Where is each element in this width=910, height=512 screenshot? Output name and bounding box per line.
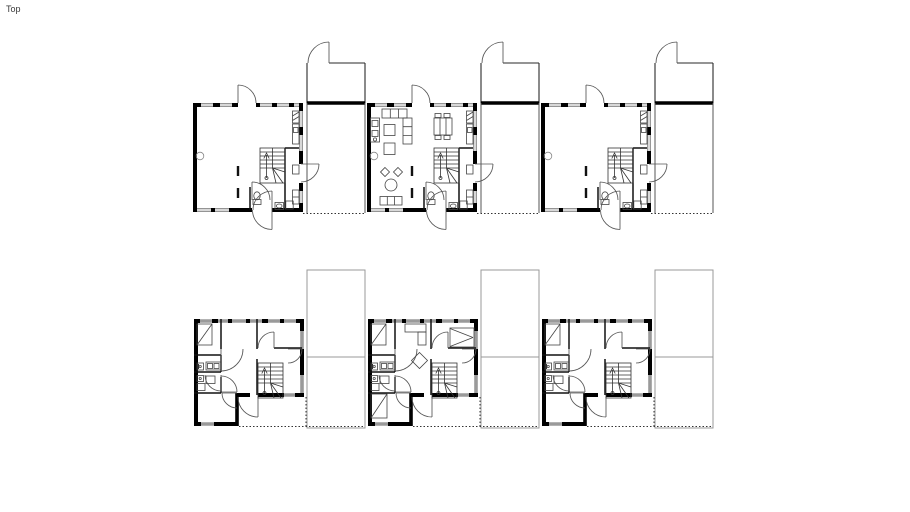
plan-viewport-canvas[interactable] [0,0,910,512]
ground-floor-row [193,42,713,230]
carport-3 [651,42,713,214]
upper-floor-row [194,270,713,428]
upper-floor-unit-3 [542,319,713,427]
upper-floor-unit-2 [368,319,539,427]
carport-roof-2 [481,270,539,428]
ground-floor-unit-2 [367,85,493,230]
upper-floor-unit-1 [194,319,365,427]
carport-roof-1 [307,270,365,428]
carport-1 [303,42,365,214]
ground-floor-unit-3 [541,85,667,230]
carport-roof-3 [655,270,713,428]
carport-2 [477,42,539,214]
upper-floor-unit-2-furniture [371,324,474,418]
ground-floor-unit-1 [193,85,319,230]
